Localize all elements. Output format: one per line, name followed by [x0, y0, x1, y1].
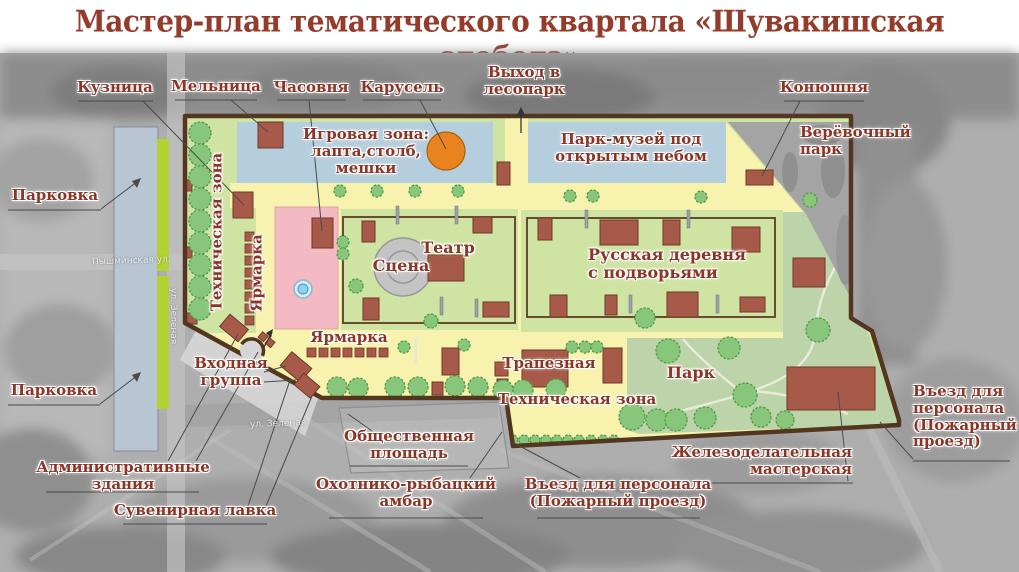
label-fair-bottom: Ярмарка: [310, 329, 388, 346]
well-circle: [294, 280, 312, 298]
label-open-air-museum: Парк-музей под открытым небом: [555, 131, 707, 165]
flag-pole: [414, 338, 417, 364]
label-refectory: Трапезная: [502, 355, 595, 372]
lime-green-strip-top: [157, 139, 169, 271]
label-forge: Кузница: [77, 79, 153, 96]
label-parking-top: Парковка: [12, 187, 98, 204]
label-public-square: Общественная площадь: [344, 428, 474, 462]
parking-lot: [114, 127, 158, 451]
label-parking-bottom: Парковка: [11, 382, 97, 399]
street-name-zelenaya: ул. Зеленая: [250, 418, 307, 430]
building-chapel: [312, 218, 333, 248]
label-carousel: Карусель: [361, 79, 444, 96]
label-technical-zone-bottom: Техническая зона: [498, 391, 657, 408]
label-souvenir-shop: Сувенирная лавка: [114, 502, 276, 519]
label-hunting-fishing-barn: Охотнико-рыбацкий амбар: [316, 476, 496, 510]
label-russian-village: Русская деревня с подворьями: [588, 246, 746, 282]
label-fair-left: Ярмарка: [249, 234, 266, 312]
label-entrance-group: Входная группа: [194, 355, 267, 389]
label-theater: Театр: [421, 239, 475, 257]
label-ironworks: Железоделательная мастерская: [672, 444, 852, 478]
label-admin-buildings: Административные здания: [36, 459, 210, 493]
street-name-zelenaya-vertical: ул. Зеленая: [168, 288, 178, 344]
building-forge: [233, 192, 253, 218]
label-play-zone: Игровая зона: лапта,столб, мешки: [303, 126, 429, 176]
label-technical-zone-left: Техническая зона: [209, 153, 226, 312]
label-park: Парк: [667, 364, 715, 382]
building-stable: [746, 170, 773, 185]
label-mill: Мельница: [171, 78, 261, 95]
slide: Мастер-план тематического квартала «Шува…: [0, 0, 1019, 572]
label-stable: Конюшня: [780, 79, 868, 96]
building-ironworks: [787, 367, 875, 410]
label-chapel: Часовня: [273, 79, 348, 96]
label-rope-park: Верёвочный парк: [800, 124, 911, 158]
building-theater: [428, 255, 464, 281]
carousel-circle: [427, 132, 465, 170]
label-staff-entrance-bottom: Въезд для персонала (Пожарный проезд): [525, 476, 712, 510]
building-mill: [258, 122, 283, 148]
label-staff-entrance-right: Въезд для персонала (Пожарный проезд): [913, 383, 1017, 450]
label-stage: Сцена: [373, 257, 430, 275]
label-forest-exit: Выход в лесопарк: [483, 64, 564, 98]
